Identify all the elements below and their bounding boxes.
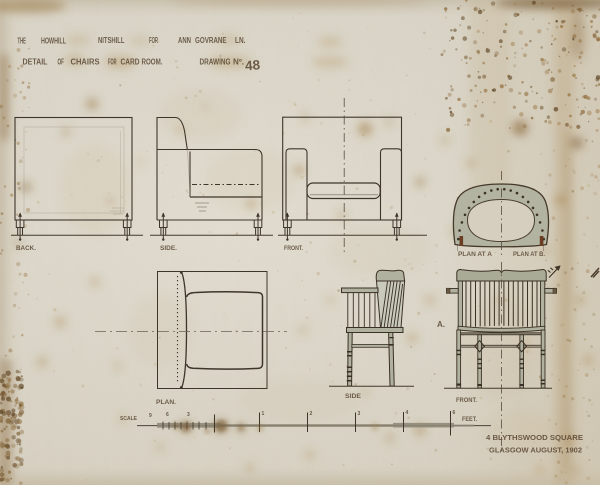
svg-text:BACK.: BACK.	[16, 245, 36, 252]
svg-text:FOR: FOR	[108, 58, 117, 67]
svg-text:CHAIRS: CHAIRS	[71, 58, 101, 67]
svg-text:6: 6	[453, 410, 456, 416]
svg-text:4: 4	[406, 410, 409, 416]
svg-text:6: 6	[166, 412, 169, 418]
svg-text:A.: A.	[437, 320, 445, 329]
svg-text:HOWHILL: HOWHILL	[41, 37, 66, 46]
svg-text:PLAN.: PLAN.	[156, 399, 176, 406]
svg-text:GOVRANE: GOVRANE	[195, 36, 227, 45]
svg-text:3: 3	[358, 411, 361, 417]
svg-text:CARD: CARD	[121, 58, 140, 67]
svg-text:PLAN AT A: PLAN AT A	[458, 251, 492, 258]
svg-text:4 BLYTHSWOOD SQUARE: 4 BLYTHSWOOD SQUARE	[486, 435, 583, 442]
svg-text:DRAWING: DRAWING	[200, 58, 231, 67]
svg-text:Nº.: Nº.	[233, 58, 244, 67]
svg-text:LN.: LN.	[235, 36, 246, 45]
svg-text:3: 3	[187, 412, 190, 418]
svg-text:SIDE.: SIDE.	[160, 245, 177, 252]
svg-text:FEET.: FEET.	[462, 416, 477, 423]
svg-text:THE: THE	[18, 37, 27, 46]
svg-text:DETAIL: DETAIL	[23, 58, 48, 67]
svg-text:ROOM.: ROOM.	[142, 58, 163, 67]
svg-text:GLASGOW AUGUST, 1902: GLASGOW AUGUST, 1902	[489, 446, 582, 455]
svg-text:ANN: ANN	[178, 36, 191, 45]
svg-text:PLAN AT B.: PLAN AT B.	[513, 251, 545, 258]
svg-text:FRONT.: FRONT.	[284, 245, 303, 252]
svg-text:FRONT.: FRONT.	[456, 397, 477, 404]
svg-text:NITSHILL: NITSHILL	[98, 36, 125, 45]
svg-text:SCALE: SCALE	[120, 416, 137, 422]
svg-text:OF: OF	[58, 58, 65, 67]
svg-text:SIDE: SIDE	[345, 393, 361, 400]
svg-text:FOR: FOR	[149, 36, 158, 45]
svg-text:48: 48	[245, 57, 262, 73]
svg-text:9: 9	[149, 413, 152, 419]
svg-text:1: 1	[262, 411, 265, 417]
svg-text:2: 2	[310, 411, 313, 417]
